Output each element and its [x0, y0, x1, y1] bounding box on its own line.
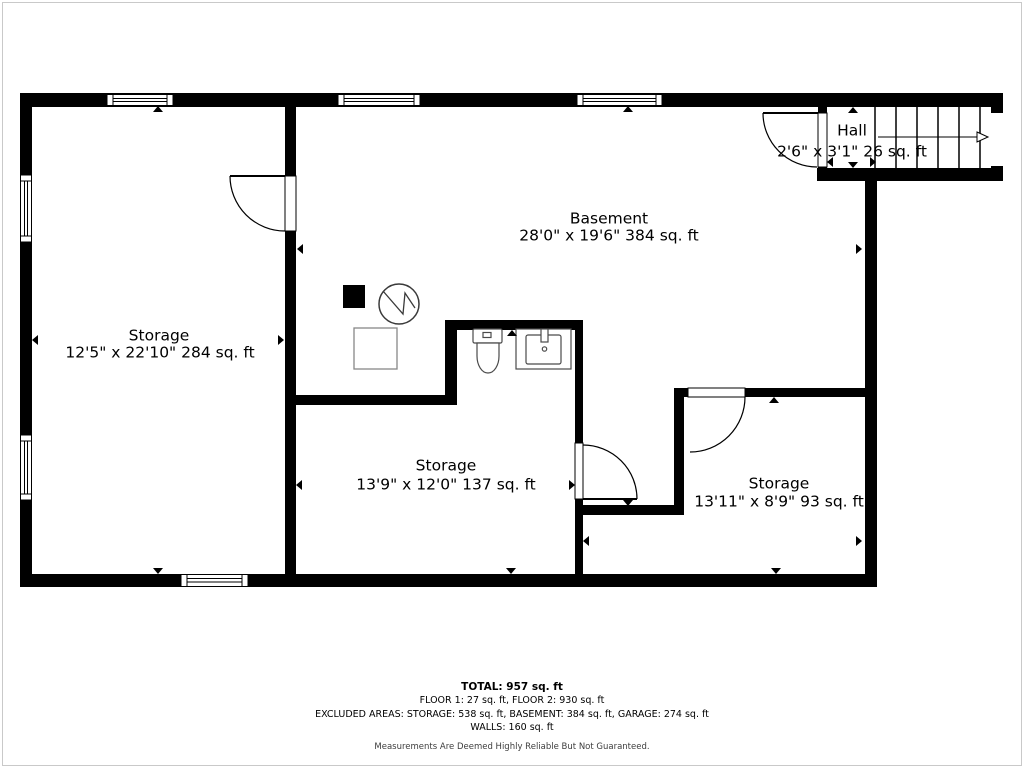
dimension-arrow	[771, 568, 781, 574]
door-swing-arc	[583, 445, 637, 499]
floor-plan-page: Storage 12'5" x 22'10" 284 sq. ft Baseme…	[0, 0, 1024, 768]
window-icon	[181, 575, 248, 587]
room-label-storage-right: Storage	[749, 475, 810, 492]
room-label-basement: Basement	[570, 210, 648, 227]
wall-storage-right-left	[674, 388, 684, 515]
dimension-arrow	[769, 397, 779, 403]
wall-storage-middle-top	[285, 395, 457, 405]
summary-disclaimer: Measurements Are Deemed Highly Reliable …	[0, 742, 1024, 753]
room-dims-storage-right: 13'11" x 8'9" 93 sq. ft	[694, 493, 864, 510]
wall-right	[865, 170, 877, 587]
water-heater-icon	[379, 284, 419, 324]
door	[230, 176, 296, 231]
dimension-arrow	[856, 536, 862, 546]
dimension-arrow	[506, 568, 516, 574]
door	[575, 443, 637, 499]
door-swing-arc	[230, 176, 285, 231]
appliance-icon	[354, 328, 397, 369]
floor-plan-drawing	[0, 0, 1024, 768]
window-icon	[577, 95, 662, 106]
area-summary: TOTAL: 957 sq. ft FLOOR 1: 27 sq. ft, FL…	[0, 680, 1024, 753]
wall-storage-right-top-b	[745, 388, 877, 397]
dimension-arrow	[583, 536, 589, 546]
room-dims-storage-left: 12'5" x 22'10" 284 sq. ft	[65, 344, 254, 361]
door-leaf	[688, 388, 745, 397]
window-icon	[107, 95, 173, 106]
chimney-icon	[343, 285, 365, 308]
room-label-storage-left: Storage	[129, 327, 190, 344]
stairs-direction-arrow	[878, 132, 988, 142]
doors	[230, 113, 827, 499]
dimension-arrow	[848, 162, 858, 168]
door	[688, 388, 745, 452]
wall-hall-left-lower	[818, 167, 827, 180]
summary-total: TOTAL: 957 sq. ft	[0, 680, 1024, 694]
wall-stair-wing-right-top-stub	[991, 107, 1003, 113]
window-icon	[21, 435, 32, 500]
room-dims-basement: 28'0" x 19'6" 384 sq. ft	[519, 227, 698, 244]
wall-stair-wing-right-bottom-stub	[991, 166, 1003, 181]
summary-walls: WALLS: 160 sq. ft	[0, 721, 1024, 735]
room-label-storage-middle: Storage	[416, 457, 477, 474]
room-dims-hall: 2'6" x 3'1" 26 sq. ft	[777, 143, 927, 160]
dimension-arrow	[296, 480, 302, 490]
room-dims-storage-middle: 13'9" x 12'0" 137 sq. ft	[356, 476, 535, 493]
dimension-arrow	[856, 244, 862, 254]
wall-stair-wing-bottom	[817, 168, 1003, 181]
window-icon	[21, 175, 32, 242]
wall-storage-right-top-a	[674, 388, 688, 397]
dimension-arrow	[297, 244, 303, 254]
wall-bottom	[20, 574, 877, 587]
wall-bath-niche-left	[445, 320, 457, 398]
wall-storage-middle-right-upper	[575, 320, 583, 443]
wall-corridor-bottom	[575, 505, 684, 515]
room-label-hall: Hall	[837, 122, 867, 139]
dimension-arrow	[848, 107, 858, 113]
summary-floors: FLOOR 1: 27 sq. ft, FLOOR 2: 930 sq. ft	[0, 694, 1024, 708]
dimension-arrow	[32, 335, 38, 345]
dimension-arrow	[153, 568, 163, 574]
dimension-arrow	[278, 335, 284, 345]
toilet-icon	[473, 329, 502, 373]
wall-divider-upper	[285, 107, 296, 176]
summary-excluded-areas: EXCLUDED AREAS: STORAGE: 538 sq. ft, BAS…	[0, 708, 1024, 722]
sink-icon	[516, 329, 571, 369]
door-swing-arc	[690, 397, 745, 452]
window-icon	[338, 95, 420, 106]
wall-hall-left-upper	[818, 107, 827, 113]
dimension-arrow	[569, 480, 575, 490]
wall-left	[20, 93, 32, 587]
